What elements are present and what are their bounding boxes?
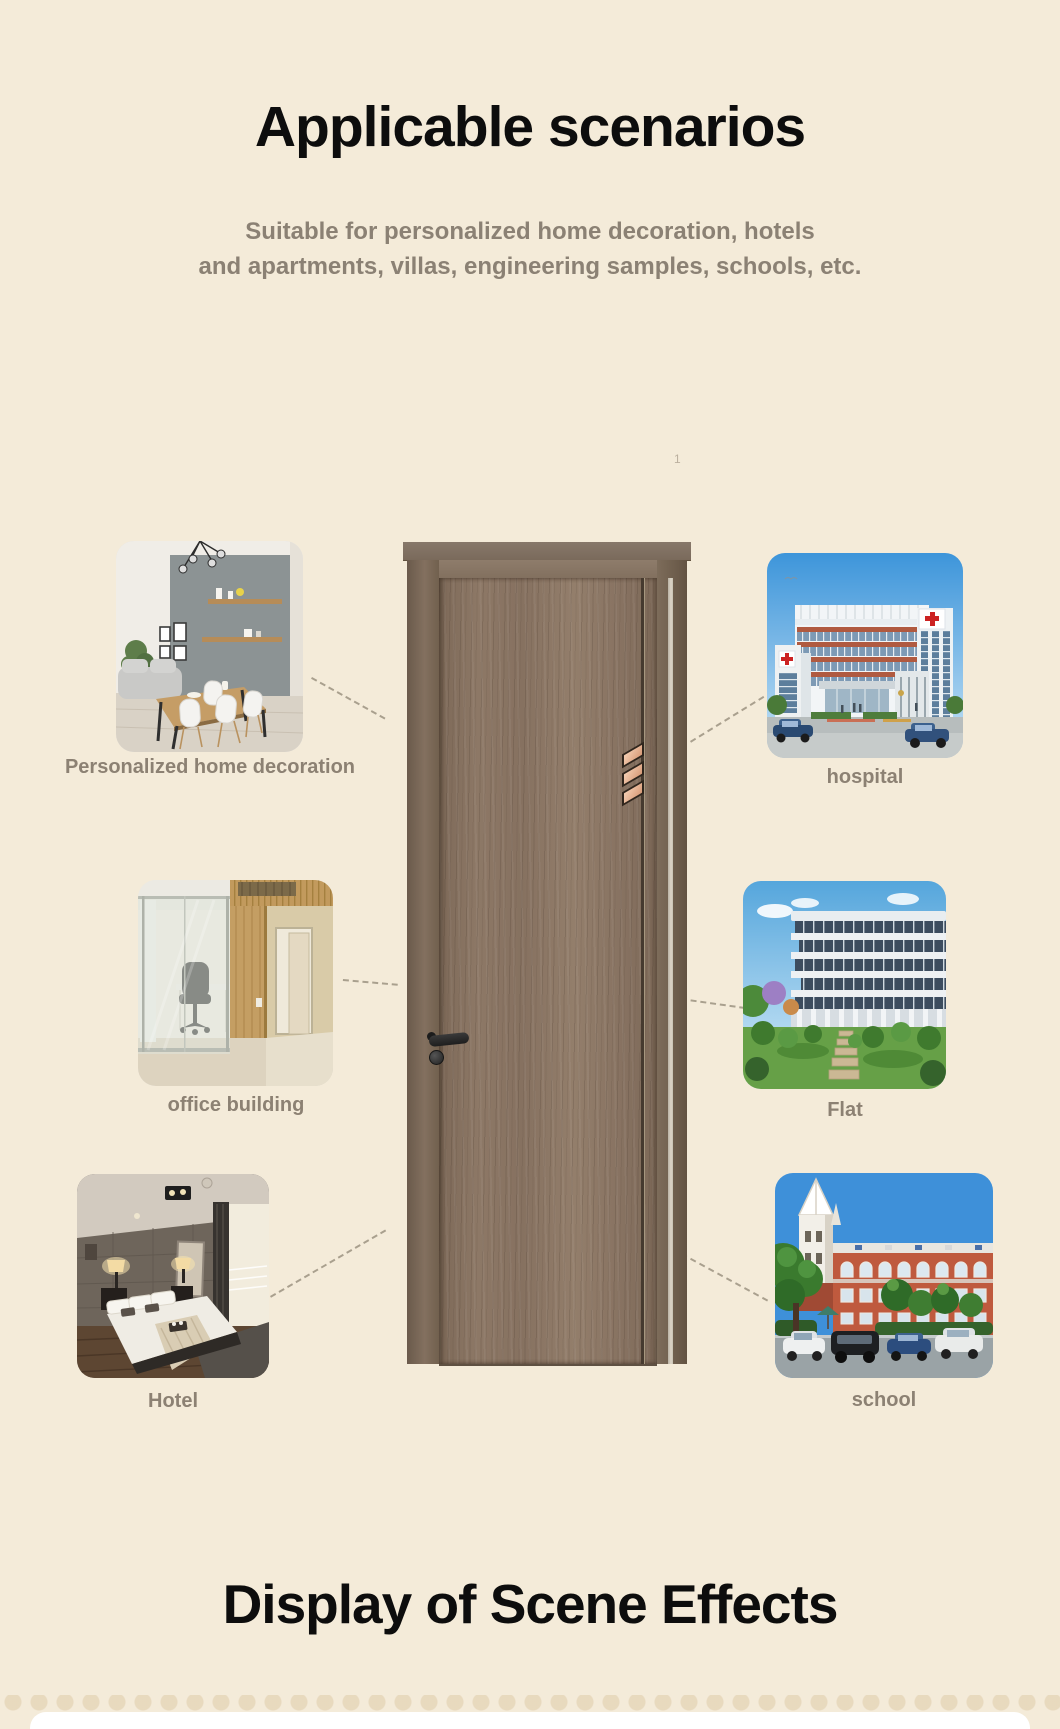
door-groove-line — [641, 578, 645, 1364]
office-interior-scene — [138, 880, 333, 1086]
door-frame-lintel — [403, 542, 691, 561]
connector-home-decoration — [311, 677, 385, 719]
school-photo — [775, 1173, 993, 1378]
door-frame-left-jamb — [407, 560, 439, 1364]
subtitle-line-2: and apartments, villas, engineering samp… — [0, 249, 1060, 284]
door-leaf — [439, 578, 657, 1366]
subtitle-line-1: Suitable for personalized home decoratio… — [0, 214, 1060, 249]
door-lock-knob — [429, 1050, 444, 1065]
door-edge-gap — [668, 578, 673, 1364]
page-title: Applicable scenarios — [0, 94, 1060, 160]
connector-hospital — [690, 696, 764, 743]
scenario-label-office-building: office building — [136, 1094, 336, 1117]
connector-hotel — [270, 1230, 386, 1298]
living-room-scene — [116, 541, 303, 752]
school-building-scene — [775, 1173, 993, 1378]
scenario-label-school: school — [784, 1389, 984, 1412]
footer-section-title: Display of Scene Effects — [0, 1572, 1060, 1636]
scenario-label-hotel: Hotel — [73, 1390, 273, 1413]
door-product-image — [403, 542, 691, 1364]
next-section-card — [30, 1712, 1030, 1729]
flat-photo — [743, 881, 946, 1089]
scenario-label-home-decoration: Personalized home decoration — [60, 756, 360, 779]
hotel-bedroom-scene — [77, 1174, 269, 1378]
stray-mark: 1 — [674, 452, 681, 466]
office-building-photo — [138, 880, 333, 1086]
page-subtitle: Suitable for personalized home decoratio… — [0, 214, 1060, 284]
applicable-scenarios-section: Applicable scenarios Suitable for person… — [0, 0, 1060, 1729]
connector-office-building — [343, 979, 398, 986]
door-frame-lintel-inner — [407, 560, 687, 580]
home-decoration-photo — [116, 541, 303, 752]
scenario-label-flat: Flat — [745, 1099, 945, 1122]
apartment-building-scene — [743, 881, 946, 1089]
hospital-scene — [767, 553, 963, 758]
connector-school — [681, 1253, 768, 1302]
scenario-label-hospital: hospital — [765, 766, 965, 789]
hotel-photo — [77, 1174, 269, 1378]
hospital-photo — [767, 553, 963, 758]
